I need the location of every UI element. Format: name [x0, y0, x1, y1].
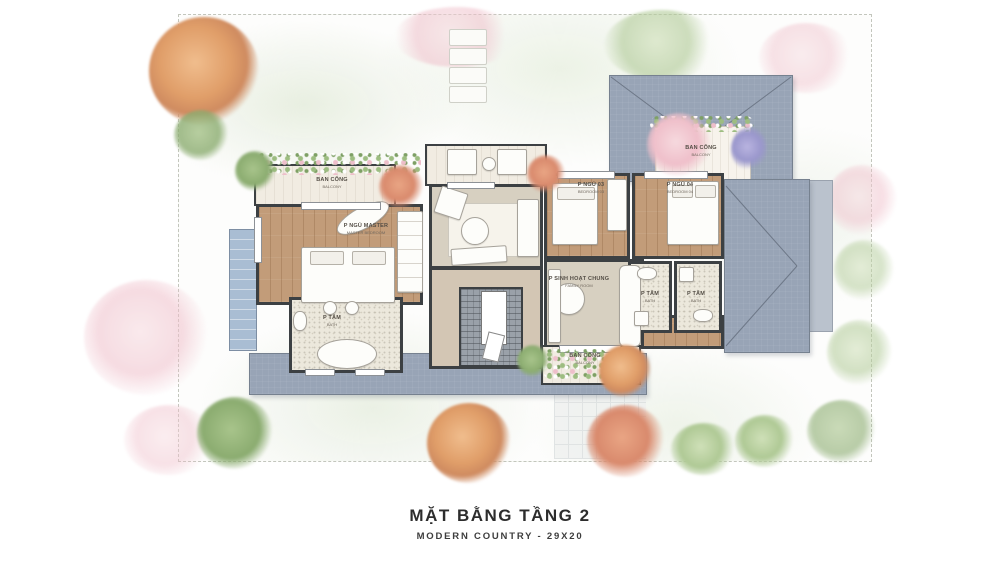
round-table	[461, 217, 489, 245]
staircase	[459, 287, 523, 367]
room-subname: BATH	[676, 298, 716, 303]
sink	[679, 267, 694, 282]
lounge-chair	[447, 149, 477, 175]
room-name: BAN CÔNG	[661, 145, 741, 152]
room-subname: BEDROOM 04	[640, 189, 720, 194]
paver-icon	[449, 29, 487, 46]
tree-icon	[174, 110, 229, 160]
lounge-chair	[497, 149, 527, 175]
site-plan: BAN CÔNG BALCONY P NGỦ MASTER MASTER BED…	[178, 14, 872, 462]
bush-icon	[235, 151, 275, 191]
room-name: BAN CÔNG	[292, 177, 372, 184]
tree-icon	[827, 320, 892, 385]
room-subname: BALCONY	[545, 360, 625, 365]
room-name: P TẮM	[302, 315, 362, 322]
room-label-family: P SINH HOẠT CHUNG FAMILY ROOM	[529, 276, 629, 288]
tree-icon	[587, 405, 665, 477]
room-label-bed03: P NGỦ 03 BEDROOM 03	[551, 182, 631, 194]
room-label-master-bath: P TẮM BATH	[302, 315, 362, 327]
toilet	[693, 309, 713, 322]
paver-icon	[449, 67, 487, 84]
room-label-bed04: P NGỦ 04 BEDROOM 04	[640, 182, 720, 194]
tree-icon	[671, 423, 737, 475]
window	[355, 369, 385, 376]
window	[447, 182, 495, 189]
tree-icon	[827, 165, 897, 235]
sink	[323, 301, 337, 315]
window	[305, 369, 335, 376]
tree-icon	[427, 403, 511, 483]
pillow	[352, 251, 386, 265]
bed-master	[301, 247, 395, 303]
room-subname: BATH	[302, 322, 362, 327]
window	[557, 171, 615, 179]
roof-ridge-lines	[725, 180, 809, 352]
room-subname: BEDROOM 03	[551, 189, 631, 194]
tree-icon	[84, 280, 209, 395]
sink	[634, 311, 649, 326]
paver-icon	[449, 86, 487, 103]
tree-icon	[197, 397, 273, 469]
room-label-balcony-tr: BAN CÔNG BALCONY	[661, 145, 741, 157]
roof-right	[724, 179, 810, 353]
room-name: P NGỦ 03	[551, 182, 631, 189]
room-label-master: P NGỦ MASTER MASTER BEDROOM	[316, 223, 416, 235]
room-label-balcony-bottom: BAN CÔNG BALCONY	[545, 353, 625, 365]
room-label-bath2: P TẮM BATH	[676, 291, 716, 303]
glass-canopy	[229, 229, 257, 351]
room-name: P TẮM	[630, 291, 670, 298]
page-title: MẶT BẰNG TẦNG 2	[0, 506, 1000, 526]
room-name: P NGỦ MASTER	[316, 223, 416, 230]
room-subname: MASTER BEDROOM	[316, 230, 416, 235]
sofa	[517, 199, 539, 257]
room-name: P TẮM	[676, 291, 716, 298]
tree-icon	[604, 10, 719, 80]
bush-icon	[379, 165, 423, 209]
sink	[345, 301, 359, 315]
caption-block: MẶT BẰNG TẦNG 2 MODERN COUNTRY - 29X20	[0, 506, 1000, 542]
room-label-bath1: P TẮM BATH	[630, 291, 670, 303]
page-subtitle: MODERN COUNTRY - 29X20	[0, 531, 1000, 542]
side-table	[482, 157, 496, 171]
room-subname: BALCONY	[292, 184, 372, 189]
tree-icon	[149, 17, 259, 125]
floor-plan-canvas: BAN CÔNG BALCONY P NGỦ MASTER MASTER BED…	[0, 0, 1000, 562]
window	[254, 217, 262, 263]
room-name: P NGỦ 04	[640, 182, 720, 189]
tree-icon	[807, 400, 877, 462]
toilet	[637, 267, 657, 280]
paver-icon	[449, 48, 487, 65]
bathtub	[317, 339, 377, 369]
room-subname: BALCONY	[661, 152, 741, 157]
room-subname: FAMILY ROOM	[529, 283, 629, 288]
room-name: P SINH HOẠT CHUNG	[529, 276, 629, 283]
tree-icon	[735, 415, 795, 467]
window	[301, 202, 381, 210]
room-subname: BATH	[630, 298, 670, 303]
room-name: BAN CÔNG	[545, 353, 625, 360]
tree-icon	[834, 240, 894, 300]
room-label-balcony-tl: BAN CÔNG BALCONY	[292, 177, 372, 189]
pillow	[310, 251, 344, 265]
